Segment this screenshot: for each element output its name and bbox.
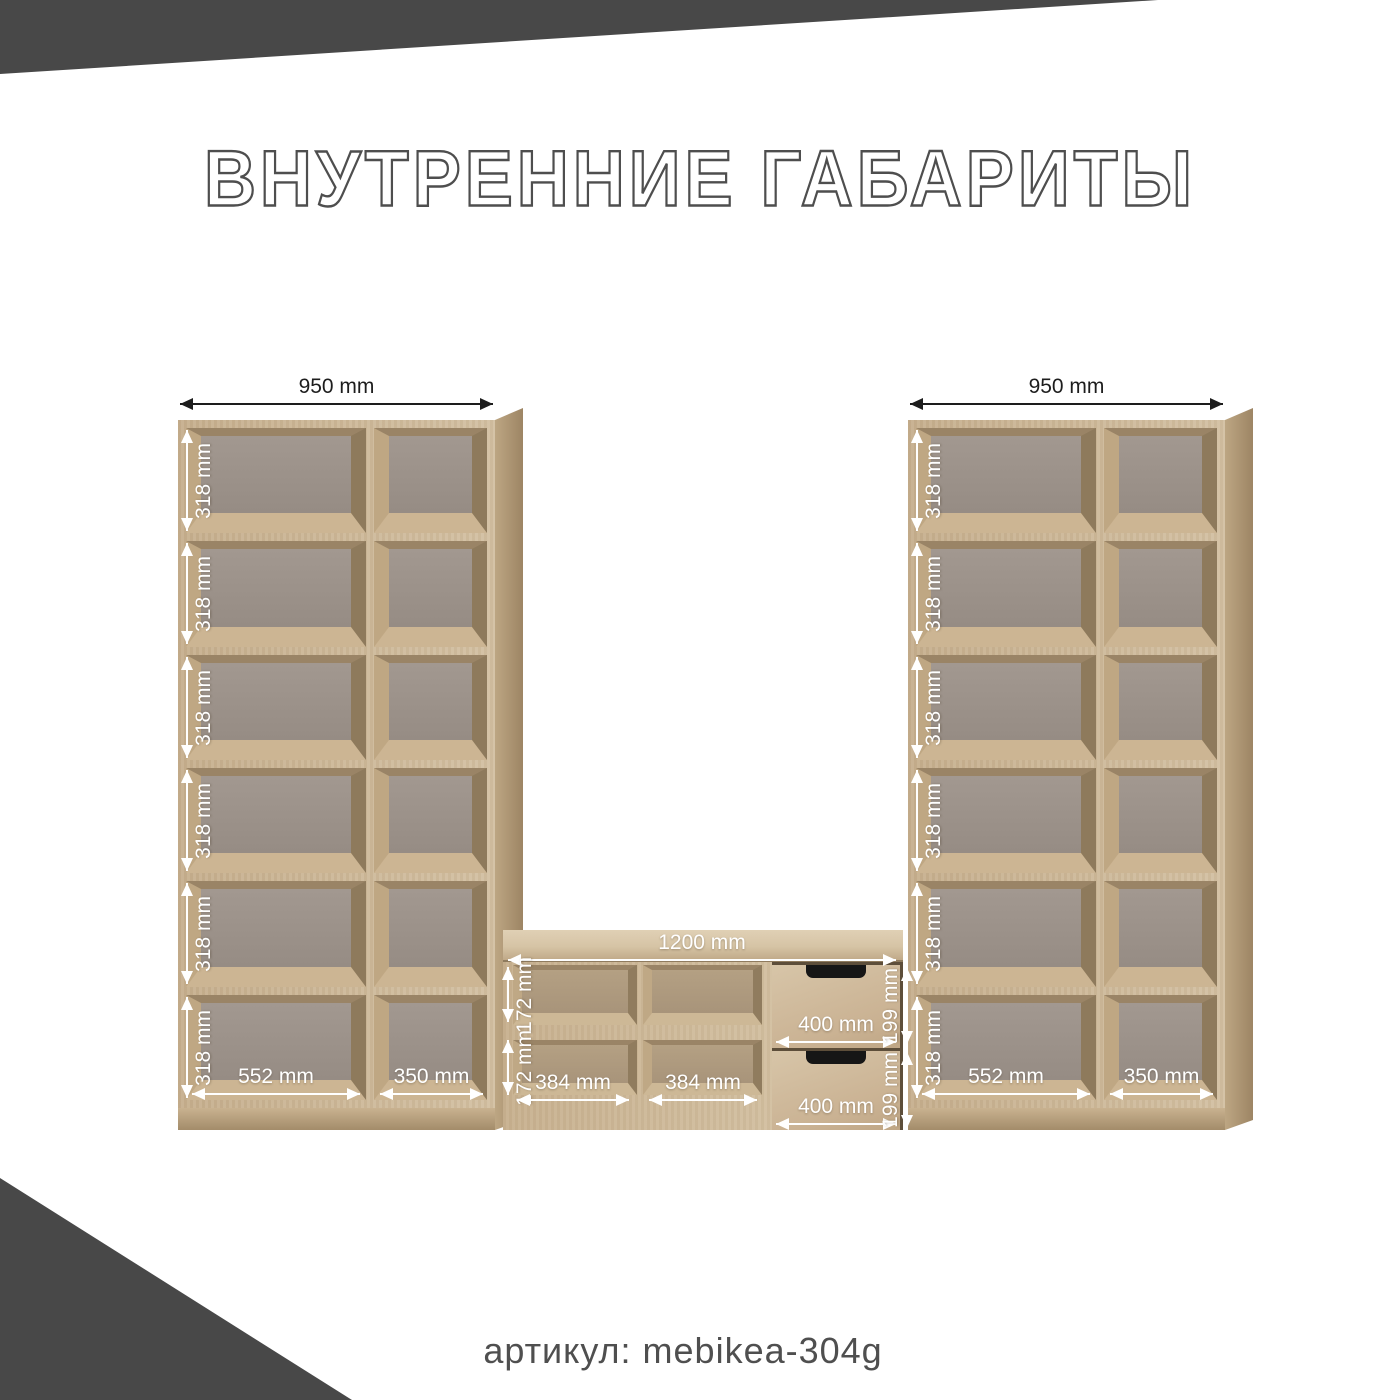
- dimension-label: 172 mm: [514, 957, 535, 1033]
- shelf-cell: [1104, 655, 1217, 760]
- dimension-label: 318 mm: [923, 896, 944, 972]
- dim-tv-compartment-2: 384 mm: [649, 1072, 757, 1101]
- dimension-label: 552 mm: [922, 1066, 1090, 1087]
- dim-left-row-1: 318 mm: [186, 430, 214, 531]
- poster-canvas: ВНУТРЕННИЕ ГАБАРИТЫ: [0, 0, 1400, 1400]
- dim-right-row-5: 318 mm: [916, 883, 944, 984]
- dim-right-row-2: 318 mm: [916, 543, 944, 644]
- page-title: ВНУТРЕННИЕ ГАБАРИТЫ: [0, 134, 1400, 224]
- dimension-arrow: [186, 430, 188, 531]
- bookcase-right: [908, 420, 1225, 1130]
- dimension-arrow: [186, 543, 188, 644]
- dimension-arrow: [508, 959, 896, 961]
- dim-tv-compartment-1: 384 mm: [517, 1072, 629, 1101]
- dimension-label: 552 mm: [192, 1066, 360, 1087]
- dimension-arrow: [186, 997, 188, 1098]
- dim-tv-width: 1200 mm: [508, 932, 896, 961]
- shelf-cell: [1104, 541, 1217, 646]
- shelf-cell: [374, 428, 487, 533]
- dim-left-row-5: 318 mm: [186, 883, 214, 984]
- bookcase-right-grid: [908, 420, 1225, 1108]
- dimension-arrow: [916, 770, 918, 871]
- top-corner-decor: [0, 0, 1158, 74]
- dim-left-bottom-wide: 552 mm: [192, 1066, 360, 1095]
- dim-drawer-bottom-width: 400 mm: [776, 1096, 896, 1125]
- article-code: артикул: mebikea-304g: [0, 1330, 1366, 1372]
- bookcase-right-side-panel: [1225, 408, 1253, 1130]
- tv-shelf-cell: [643, 965, 762, 1025]
- dim-right-bottom-wide: 552 mm: [922, 1066, 1090, 1095]
- dim-tv-row-1: 172 mm: [507, 967, 535, 1022]
- dimension-label: 199 mm: [880, 968, 901, 1044]
- dimension-arrow: [916, 543, 918, 644]
- shelf-cell: [374, 768, 487, 873]
- drawer-handle-notch: [806, 965, 866, 978]
- dimension-arrow: [916, 430, 918, 531]
- dim-left-row-4: 318 mm: [186, 770, 214, 871]
- dimension-label: 318 mm: [923, 670, 944, 746]
- dimension-arrow: [507, 967, 509, 1022]
- dimension-label: 950 mm: [910, 376, 1223, 397]
- tv-stand-open-section: [503, 962, 772, 1130]
- dim-drawer-bottom-height: 199 mm: [880, 1052, 908, 1128]
- dimension-arrow: [186, 770, 188, 871]
- dim-left-bottom-narrow: 350 mm: [380, 1066, 483, 1095]
- dimension-label: 350 mm: [380, 1066, 483, 1087]
- shelf-cell: [374, 881, 487, 986]
- bookcase-right-plinth: [908, 1108, 1225, 1130]
- dimension-label: 350 mm: [1110, 1066, 1213, 1087]
- dimension-label: 400 mm: [776, 1096, 896, 1117]
- dim-right-row-1: 318 mm: [916, 430, 944, 531]
- dimension-arrow: [186, 657, 188, 758]
- dim-right-row-4: 318 mm: [916, 770, 944, 871]
- dimension-arrow: [517, 1099, 629, 1101]
- dimension-arrow: [180, 403, 493, 405]
- shelf-cell: [374, 541, 487, 646]
- dimension-arrow: [776, 1123, 896, 1125]
- shelf-cell: [374, 655, 487, 760]
- dimension-arrow: [906, 968, 908, 1044]
- dimension-label: 318 mm: [193, 443, 214, 519]
- dimension-arrow: [906, 1052, 908, 1128]
- dim-drawer-top-width: 400 mm: [776, 1014, 896, 1043]
- dimension-label: 318 mm: [193, 556, 214, 632]
- dim-right-bottom-narrow: 350 mm: [1110, 1066, 1213, 1095]
- dimension-label: 318 mm: [193, 783, 214, 859]
- dim-right-row-3: 318 mm: [916, 657, 944, 758]
- dimension-arrow: [192, 1093, 360, 1095]
- dim-left-row-3: 318 mm: [186, 657, 214, 758]
- dimension-arrow: [916, 997, 918, 1098]
- bookcase-left-grid: [178, 420, 495, 1108]
- dim-left-row-2: 318 mm: [186, 543, 214, 644]
- dimension-label: 318 mm: [923, 783, 944, 859]
- bookcase-left: [178, 420, 495, 1130]
- shelf-cell: [1104, 768, 1217, 873]
- dimension-label: 384 mm: [649, 1072, 757, 1093]
- drawer-handle-notch: [806, 1051, 866, 1064]
- dimension-label: 318 mm: [923, 556, 944, 632]
- dimension-arrow: [922, 1093, 1090, 1095]
- dimension-label: 384 mm: [517, 1072, 629, 1093]
- dimension-label: 1200 mm: [508, 932, 896, 953]
- dim-left-bookcase-width: 950 mm: [180, 376, 493, 405]
- dimension-arrow: [910, 403, 1223, 405]
- dimension-arrow: [649, 1099, 757, 1101]
- dimension-label: 318 mm: [193, 896, 214, 972]
- dimension-label: 950 mm: [180, 376, 493, 397]
- dimension-arrow: [916, 657, 918, 758]
- dimension-arrow: [916, 883, 918, 984]
- dimension-label: 318 mm: [923, 443, 944, 519]
- bookcase-left-plinth: [178, 1108, 495, 1130]
- dimension-arrow: [380, 1093, 483, 1095]
- dimension-label: 199 mm: [880, 1052, 901, 1128]
- dimension-label: 400 mm: [776, 1014, 896, 1035]
- dimension-arrow: [507, 1040, 509, 1095]
- dim-drawer-top-height: 199 mm: [880, 968, 908, 1044]
- shelf-cell: [1104, 428, 1217, 533]
- dimension-label: 318 mm: [193, 670, 214, 746]
- shelf-cell: [1104, 881, 1217, 986]
- dim-right-bookcase-width: 950 mm: [910, 376, 1223, 405]
- dimension-arrow: [1110, 1093, 1213, 1095]
- dimension-arrow: [776, 1041, 896, 1043]
- dimension-arrow: [186, 883, 188, 984]
